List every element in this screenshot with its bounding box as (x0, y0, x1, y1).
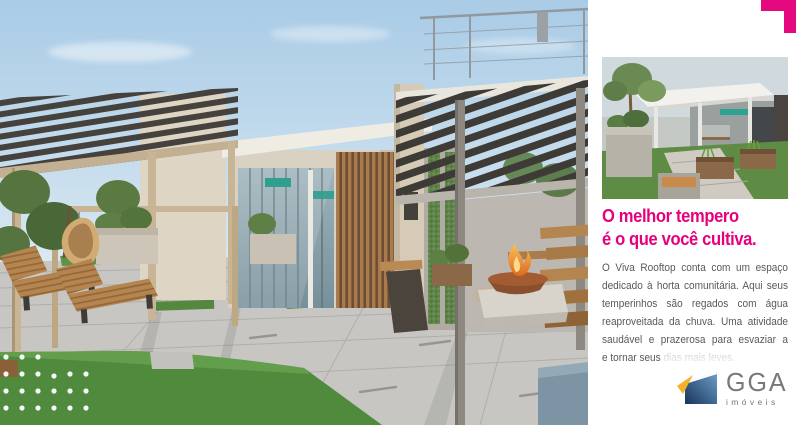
logo-title: GGA (726, 371, 788, 397)
garden-photo (602, 57, 788, 199)
headline: O melhor tempero é o que você cultiva. (602, 205, 786, 251)
body-line: temperinhos são regados com água (602, 295, 788, 313)
headline-line-2: é o que você cultiva. (602, 228, 786, 251)
rooftop-unit (537, 12, 548, 42)
logo-subtitle: imóveis (726, 398, 788, 407)
blue-bench (538, 362, 588, 425)
gga-building-icon (675, 370, 719, 408)
wood-slat-screen (336, 152, 394, 308)
sign-teal-1 (265, 178, 291, 187)
body-line: reaproveitada da chuva. Uma atividade (602, 313, 788, 331)
gga-logo: GGA imóveis (663, 347, 800, 417)
white-column (308, 170, 313, 308)
headline-line-1: O melhor tempero (602, 205, 786, 228)
garden-planter (606, 110, 652, 177)
sign-teal-2 (312, 191, 334, 199)
body-line: O Viva Rooftop conta com um espaço (602, 259, 788, 277)
body-line: dedicado à horta comunitária. Aqui seus (602, 277, 788, 295)
garden-sign-teal (720, 109, 750, 115)
marketing-page: O melhor tempero é o que você cultiva. O… (0, 0, 800, 425)
corner-accent (784, 0, 796, 33)
rooftop-render (0, 0, 588, 425)
wood-box (0, 360, 18, 377)
info-panel: O melhor tempero é o que você cultiva. O… (588, 0, 800, 425)
